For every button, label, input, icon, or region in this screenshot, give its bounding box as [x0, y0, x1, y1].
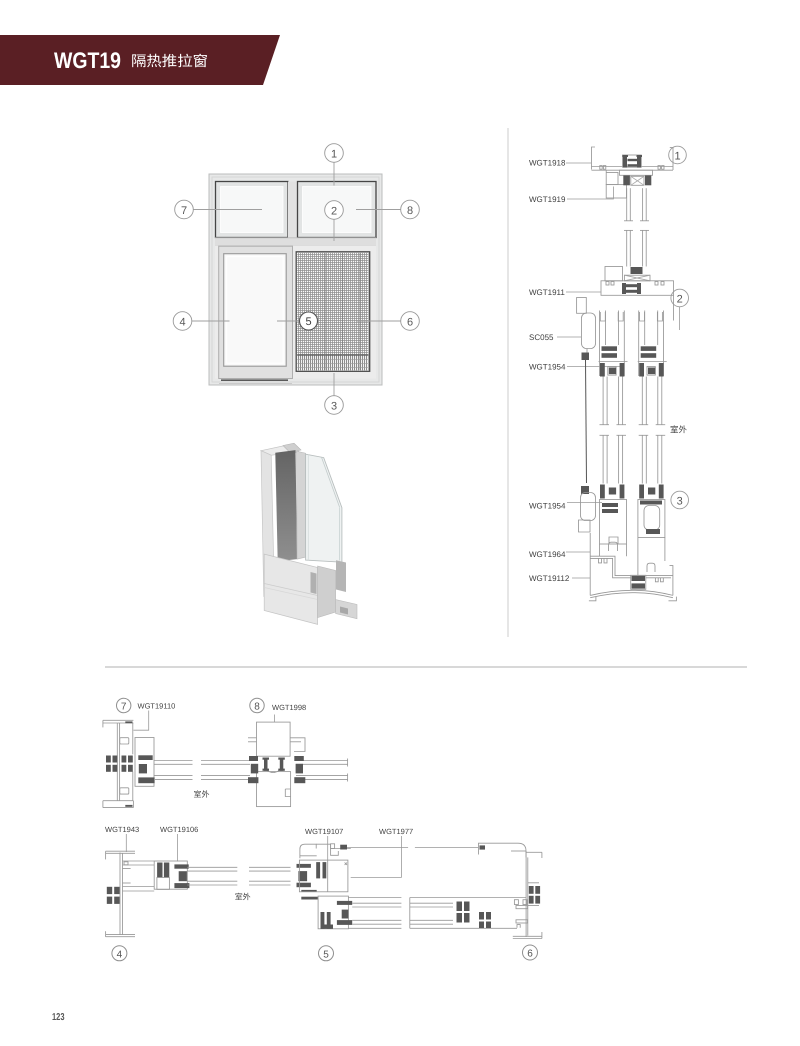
svg-text:WGT1964: WGT1964	[529, 550, 566, 559]
svg-text:4: 4	[179, 316, 185, 328]
svg-text:WGT1918: WGT1918	[529, 159, 566, 168]
svg-text:WGT19: WGT19	[54, 48, 121, 73]
svg-text:5: 5	[323, 949, 329, 960]
svg-text:5: 5	[305, 316, 311, 328]
svg-text:123: 123	[52, 1012, 65, 1023]
svg-text:2: 2	[331, 205, 337, 217]
svg-text:室外: 室外	[670, 425, 688, 435]
svg-text:WGT1977: WGT1977	[379, 827, 413, 836]
svg-text:7: 7	[121, 701, 127, 712]
svg-text:8: 8	[254, 701, 260, 712]
svg-text:室外: 室外	[235, 893, 251, 902]
svg-text:WGT19106: WGT19106	[160, 825, 198, 834]
svg-text:SC055: SC055	[529, 333, 554, 342]
svg-text:隔热推拉窗: 隔热推拉窗	[131, 53, 208, 70]
svg-text:1: 1	[674, 150, 680, 162]
svg-text:WGT1911: WGT1911	[529, 288, 565, 297]
svg-text:3: 3	[677, 495, 683, 507]
svg-text:WGT1998: WGT1998	[272, 703, 306, 712]
svg-text:WGT19112: WGT19112	[529, 574, 570, 583]
svg-text:6: 6	[407, 316, 413, 328]
svg-text:WGT19110: WGT19110	[138, 702, 176, 711]
svg-text:WGT1919: WGT1919	[529, 195, 566, 204]
svg-text:WGT1954: WGT1954	[529, 363, 566, 372]
svg-text:室外: 室外	[194, 790, 210, 799]
svg-text:2: 2	[677, 293, 683, 305]
svg-text:7: 7	[181, 205, 187, 217]
svg-text:WGT1954: WGT1954	[529, 502, 566, 511]
svg-text:WGT1943: WGT1943	[105, 825, 139, 834]
svg-text:1: 1	[331, 148, 337, 160]
svg-text:3: 3	[331, 400, 337, 412]
svg-text:8: 8	[407, 205, 413, 217]
svg-text:WGT19107: WGT19107	[305, 827, 343, 836]
svg-text:6: 6	[527, 949, 533, 960]
svg-text:4: 4	[117, 949, 123, 960]
